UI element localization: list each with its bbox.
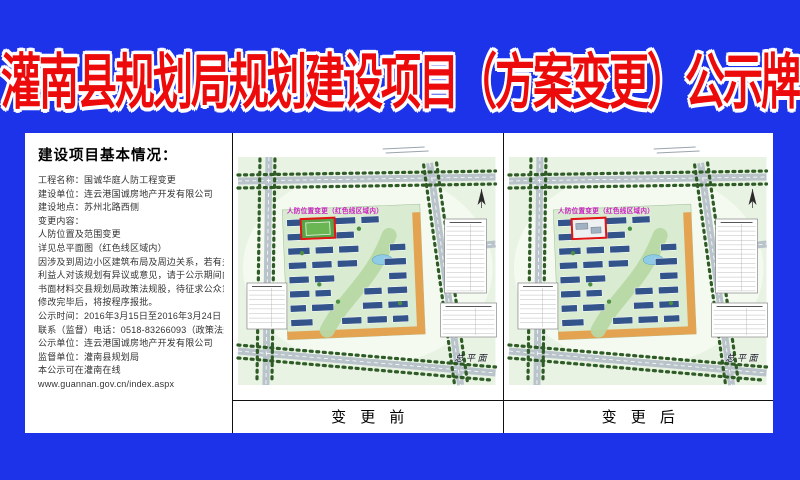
info-line: 变更内容： <box>38 215 224 229</box>
info-line: 公示时间：2016年3月15日至2016年3月24日 <box>38 310 224 324</box>
svg-text:人防位置变更（红色线区域内）: 人防位置变更（红色线区域内） <box>557 206 653 215</box>
site-plan-before: 人防位置变更（红色线区域内）总平面 <box>233 133 503 400</box>
before-map-panel: 人防位置变更（红色线区域内）总平面 变 更 前 <box>232 133 503 433</box>
info-line: 建设单位：连云港国诚房地产开发有限公司 <box>38 188 224 202</box>
notice-title: 灌南县规划局规划建设项目（方案变更）公示牌 <box>0 34 800 121</box>
info-line: 监督单位：灌南县规划局 <box>38 351 224 365</box>
info-line: 本公示可在灌南在线 <box>38 364 224 378</box>
info-line: 工程名称：国诚华庭人防工程变更 <box>38 174 224 188</box>
info-heading: 建设项目基本情况： <box>38 144 224 165</box>
before-map-label: 变 更 前 <box>233 400 503 432</box>
svg-text:总平面: 总平面 <box>455 353 489 363</box>
svg-text:人防位置变更（红色线区域内）: 人防位置变更（红色线区域内） <box>287 206 383 215</box>
info-line: 因涉及到周边小区建筑布局及周边关系，若有关 <box>38 256 224 270</box>
site-plan-after: 人防位置变更（红色线区域内）总平面 <box>504 133 774 400</box>
info-line: 书面材料交县规划局政策法规股，待征求公众意见 <box>38 283 224 297</box>
info-line: 利益人对该规划有异议或意见，请于公示期间内将 <box>38 269 224 283</box>
info-line: 修改完毕后，将按程序报批。 <box>38 296 224 310</box>
info-line: www.guannan.gov.cn/index.aspx <box>38 378 224 392</box>
info-line: 人防位置及范围变更 <box>38 228 224 242</box>
info-line: 建设地点：苏州北路西侧 <box>38 201 224 215</box>
info-column: 建设项目基本情况： 工程名称：国诚华庭人防工程变更建设单位：连云港国诚房地产开发… <box>25 133 232 433</box>
info-line: 详见总平面图（红色线区域内） <box>38 242 224 256</box>
svg-text:总平面: 总平面 <box>725 353 759 363</box>
info-line: 联系（监督）电话：0518-83266093（政策法规股） <box>38 324 224 338</box>
after-map-label: 变 更 后 <box>504 400 774 432</box>
info-line: 公示单位：连云港国诚房地产开发有限公司 <box>38 337 224 351</box>
after-map-panel: 人防位置变更（红色线区域内）总平面 变 更 后 <box>503 133 774 433</box>
info-lines: 工程名称：国诚华庭人防工程变更建设单位：连云港国诚房地产开发有限公司建设地点：苏… <box>38 174 224 392</box>
notice-panel: 建设项目基本情况： 工程名称：国诚华庭人防工程变更建设单位：连云港国诚房地产开发… <box>25 133 773 433</box>
